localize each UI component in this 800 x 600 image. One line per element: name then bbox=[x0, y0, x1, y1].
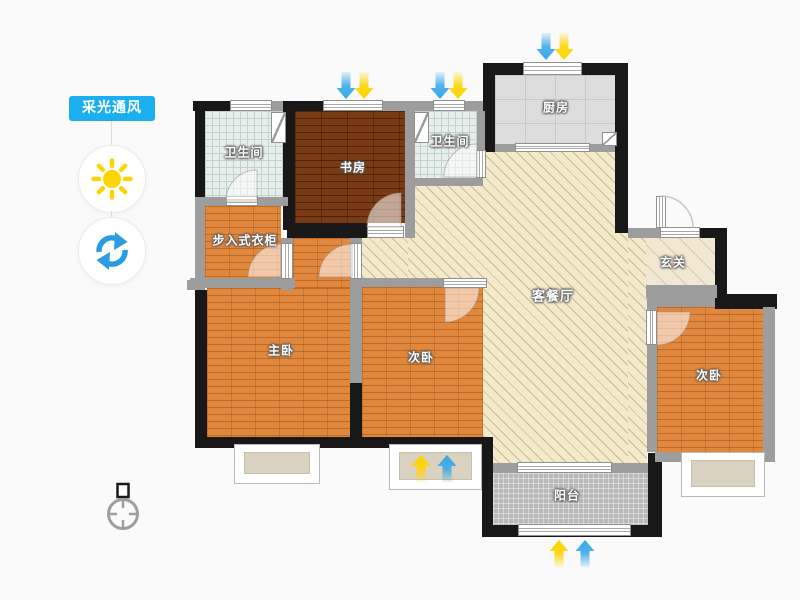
room-label-kitchen: 厨房 bbox=[543, 99, 569, 116]
sun-icon bbox=[79, 146, 145, 212]
room-label-master: 主卧 bbox=[268, 342, 294, 359]
entrance-door-arc bbox=[661, 196, 693, 228]
room-label-entry: 玄关 bbox=[660, 254, 686, 271]
room-label-closet: 步入式衣柜 bbox=[212, 232, 277, 249]
ventilation-button[interactable] bbox=[78, 217, 146, 285]
floorplan-viewer: 卫生间 书房 卫生间 厨房 步入式衣柜 玄关 客餐厅 主卧 次卧 次卧 阳台 采… bbox=[0, 0, 800, 600]
connector-line bbox=[111, 121, 112, 146]
room-label-bathroom1: 卫生间 bbox=[224, 144, 263, 161]
room-label-balcony: 阳台 bbox=[554, 487, 580, 504]
room-label-bathroom2: 卫生间 bbox=[430, 133, 469, 150]
refresh-icon bbox=[79, 218, 145, 284]
daylight-ventilation-tool-button[interactable]: 采光通风 bbox=[69, 96, 155, 121]
door-arc bbox=[226, 144, 690, 345]
room-label-study: 书房 bbox=[340, 159, 366, 176]
daylight-button[interactable] bbox=[78, 145, 146, 213]
room-label-bedroom-right: 次卧 bbox=[696, 367, 722, 384]
compass-icon bbox=[97, 481, 153, 537]
room-label-bedroom-mid: 次卧 bbox=[408, 349, 434, 366]
room-label-living-dining: 客餐厅 bbox=[532, 286, 574, 305]
